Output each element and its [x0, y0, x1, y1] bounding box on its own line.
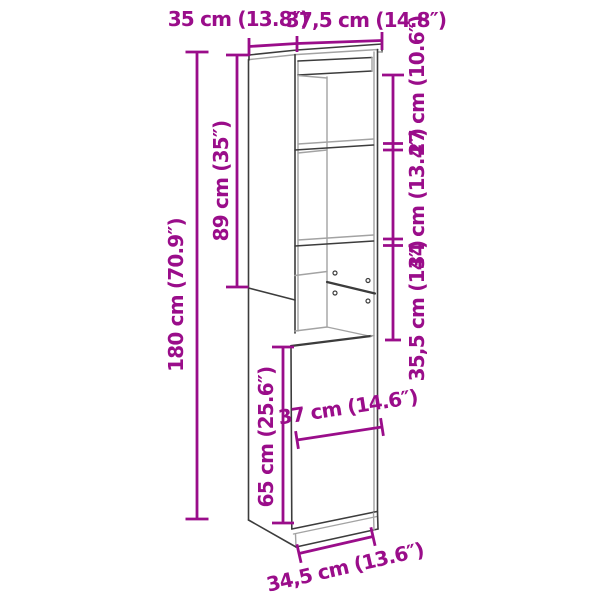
cabinet-door	[291, 346, 377, 529]
cabinet-line-drawing	[0, 0, 600, 600]
cabinet-plinth	[249, 512, 379, 547]
cabinet-top-rail	[298, 58, 372, 79]
dim-label-compartment-bottom: 35,5 cm (14″)	[407, 241, 427, 382]
dim-line-compartments	[382, 75, 404, 340]
cabinet-compartment-floor	[291, 327, 374, 346]
cabinet-shelf-1	[295, 139, 374, 153]
dim-label-upper-section-height: 89 cm (35″)	[211, 121, 231, 242]
cabinet-shelf-2	[295, 235, 374, 276]
dim-label-total-height: 180 cm (70.9″)	[166, 218, 186, 372]
dimension-diagram: 35 cm (13.8″) 37,5 cm (14.8″) 89 cm (35″…	[0, 0, 600, 600]
dim-label-door-height: 65 cm (25.6″)	[256, 367, 276, 508]
dim-line-total-height	[186, 52, 209, 519]
